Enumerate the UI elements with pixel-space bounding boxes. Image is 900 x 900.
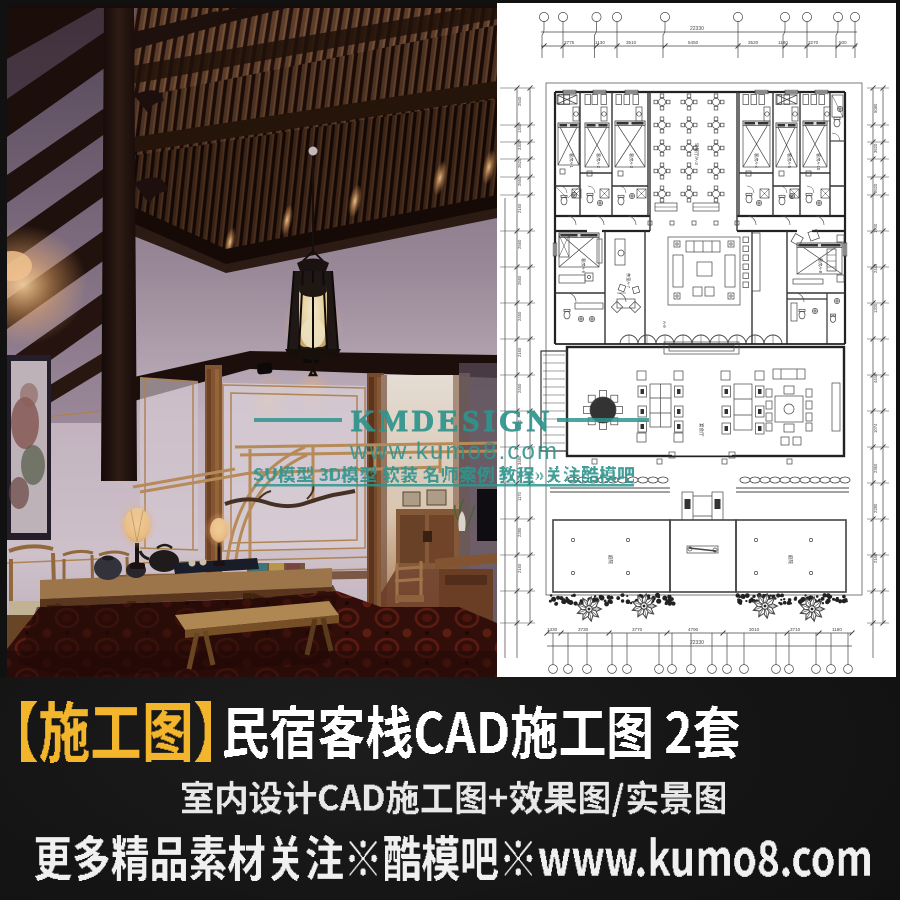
svg-text:KMDESIGN: KMDESIGN <box>351 403 551 438</box>
svg-text:www.kumo8.com: www.kumo8.com <box>349 438 560 465</box>
